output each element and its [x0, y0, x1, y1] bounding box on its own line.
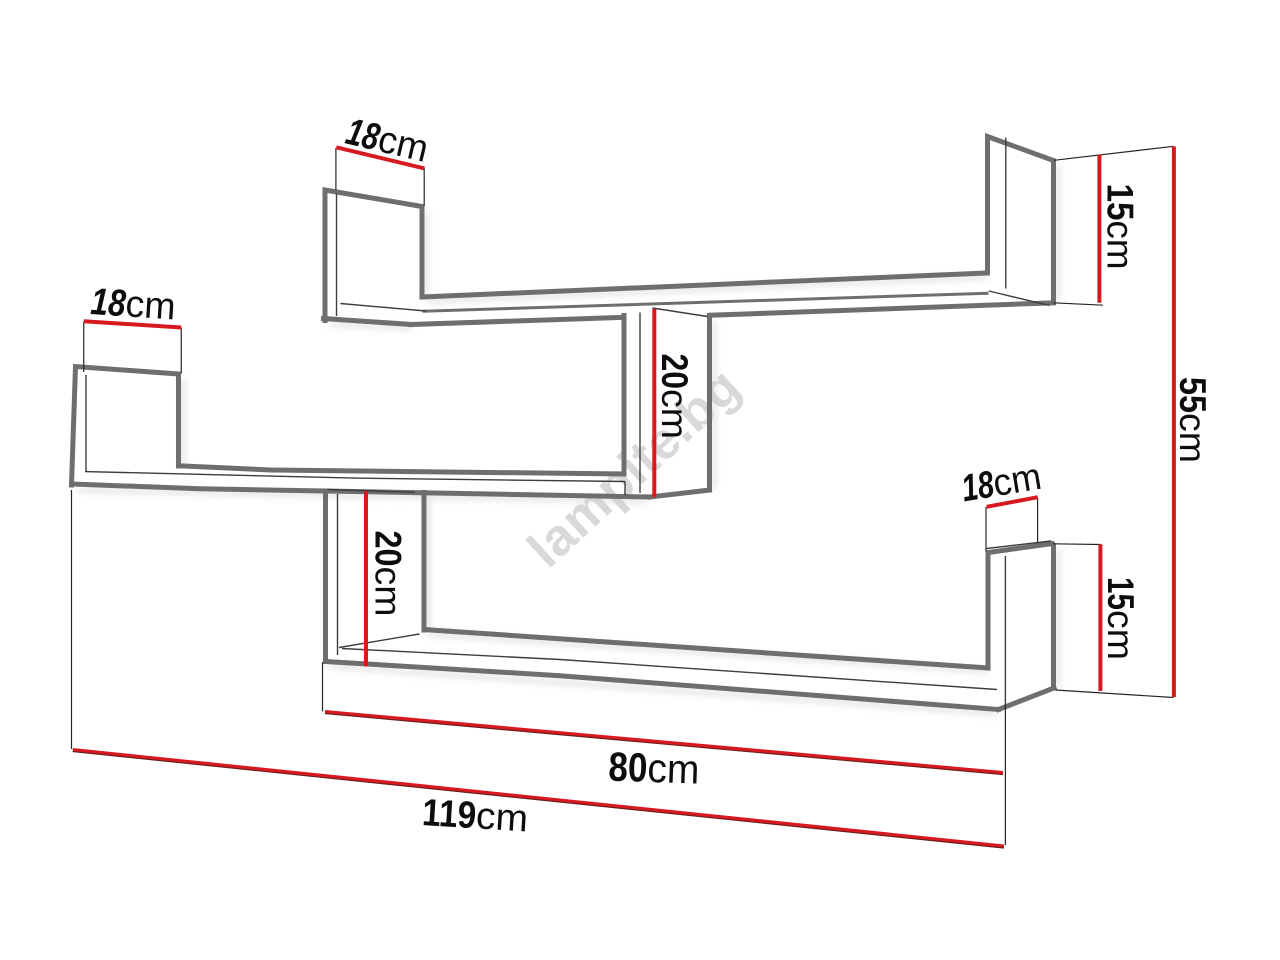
svg-text:15cm: 15cm [1100, 577, 1141, 660]
svg-text:119cm: 119cm [421, 792, 529, 840]
svg-text:55cm: 55cm [1172, 377, 1213, 463]
svg-text:80cm: 80cm [608, 744, 701, 793]
svg-text:15cm: 15cm [1100, 184, 1141, 270]
svg-text:20cm: 20cm [654, 354, 695, 440]
svg-text:18cm: 18cm [89, 281, 177, 328]
svg-text:20cm: 20cm [368, 531, 409, 617]
